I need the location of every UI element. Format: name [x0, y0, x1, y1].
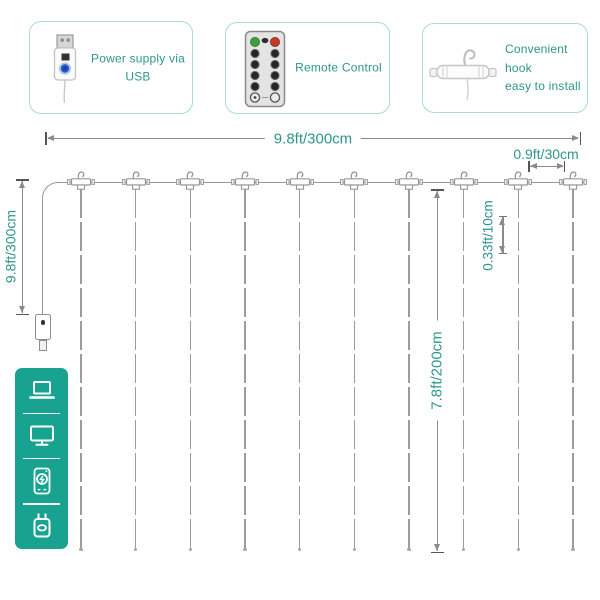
power-source-monitor	[15, 413, 68, 458]
light-strand	[518, 189, 519, 550]
light-strand	[80, 189, 81, 550]
light-strand	[135, 189, 136, 550]
callout-remote-control: Remote Control	[225, 22, 390, 114]
power-source-power-bank	[15, 459, 68, 504]
lead-cable-curve	[42, 182, 64, 216]
curtain-width-label: 9.8ft/300cm	[265, 131, 361, 148]
usb-connector	[35, 314, 51, 340]
arrow-down-icon	[434, 544, 440, 551]
usb-plug-icon	[42, 33, 88, 105]
curtain-height-label: 7.8ft/200cm	[429, 321, 446, 421]
usb-connector-tip	[39, 340, 48, 351]
arrow-left-icon	[47, 135, 54, 141]
dimension-curtain-width: 9.8ft/300cm	[45, 131, 581, 147]
callout-label: Convenient hook easy to install	[505, 40, 585, 96]
power-source-wall-charger	[15, 504, 68, 549]
hook-icon	[427, 38, 507, 102]
lead-cable	[42, 214, 43, 314]
arrow-down-icon	[19, 306, 25, 313]
bulb-spacing-label: 0.33ft/10cm	[481, 188, 496, 284]
dimension-line	[22, 181, 23, 313]
light-strand	[299, 189, 300, 550]
light-strand	[354, 189, 355, 550]
callout-hook: Convenient hook easy to install	[422, 23, 588, 113]
arrow-left-icon	[530, 163, 537, 169]
arrow-up-icon	[434, 191, 440, 198]
product-diagram: Power supply via USB Remote Control	[0, 0, 600, 600]
dimension-tick	[580, 132, 582, 145]
power-bank-icon	[31, 466, 53, 496]
usb-connector-dot	[41, 320, 46, 325]
usb-wall-charger-icon	[30, 512, 54, 540]
dimension-lead-length: 9.8ft/300cm	[16, 179, 29, 315]
remote-control-icon	[244, 30, 286, 108]
dimension-tick	[431, 552, 444, 554]
dimension-tick	[16, 314, 29, 316]
light-strand	[572, 189, 573, 550]
callout-label-line2: easy to install	[505, 79, 581, 93]
callout-label: Remote Control	[292, 59, 385, 78]
light-strand	[463, 189, 464, 550]
callout-power-supply: Power supply via USB	[29, 21, 193, 114]
light-strand	[244, 189, 245, 550]
callout-label: Power supply via USB	[88, 49, 188, 86]
laptop-icon	[27, 379, 57, 403]
callout-label-line1: Convenient hook	[505, 42, 568, 75]
arrow-down-icon	[499, 246, 505, 253]
arrow-up-icon	[499, 218, 505, 225]
lead-length-label: 9.8ft/300cm	[3, 202, 18, 292]
power-source-panel	[15, 368, 68, 549]
dimension-curtain-height: 7.8ft/200cm	[431, 189, 444, 553]
dimension-bulb-spacing: 0.33ft/10cm	[497, 216, 509, 254]
light-strand	[408, 189, 409, 550]
power-source-laptop	[15, 368, 68, 413]
arrow-up-icon	[19, 181, 25, 188]
light-strand	[190, 189, 191, 550]
monitor-icon	[28, 424, 56, 448]
hook-spacing-label: 0.9ft/30cm	[501, 146, 591, 162]
arrow-right-icon	[557, 163, 564, 169]
arrow-right-icon	[572, 135, 579, 141]
